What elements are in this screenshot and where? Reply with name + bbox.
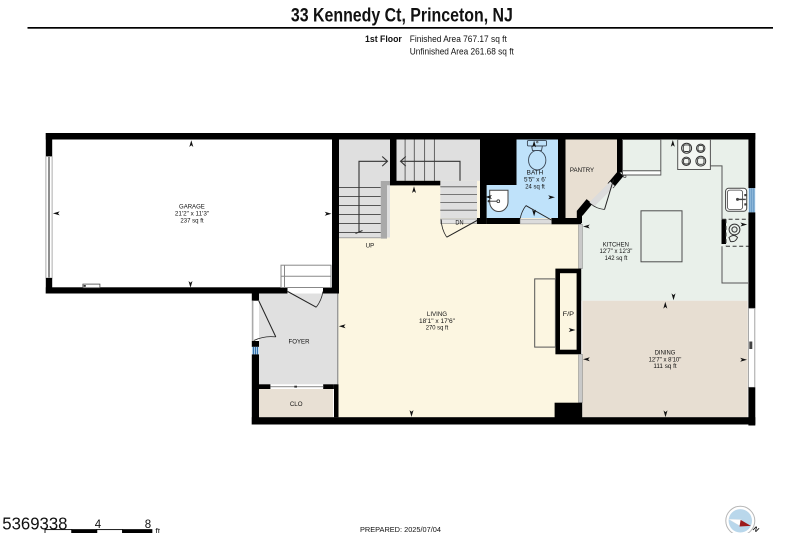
svg-text:33 Kennedy Ct, Princeton, NJ: 33 Kennedy Ct, Princeton, NJ bbox=[291, 5, 513, 26]
svg-text:270 sq ft: 270 sq ft bbox=[426, 325, 449, 332]
svg-text:142 sq ft: 142 sq ft bbox=[605, 255, 628, 262]
svg-text:FOYER: FOYER bbox=[289, 339, 310, 346]
svg-text:24 sq ft: 24 sq ft bbox=[525, 183, 545, 190]
svg-text:PANTRY: PANTRY bbox=[570, 167, 595, 174]
svg-text:ft: ft bbox=[155, 526, 160, 533]
svg-text:Unfinished Area 261.68 sq ft: Unfinished Area 261.68 sq ft bbox=[410, 46, 514, 57]
svg-text:LIVING: LIVING bbox=[427, 311, 447, 318]
svg-text:F/P: F/P bbox=[563, 311, 574, 318]
svg-text:BATH: BATH bbox=[527, 169, 544, 176]
svg-text:1st Floor: 1st Floor bbox=[365, 34, 402, 45]
svg-text:111 sq ft: 111 sq ft bbox=[653, 363, 677, 370]
svg-text:5369338: 5369338 bbox=[2, 514, 67, 533]
svg-text:8: 8 bbox=[145, 519, 151, 531]
svg-text:PREPARED: 2025/07/04: PREPARED: 2025/07/04 bbox=[360, 525, 441, 533]
svg-text:UP: UP bbox=[366, 242, 374, 249]
svg-text:Finished Area 767.17 sq ft: Finished Area 767.17 sq ft bbox=[410, 34, 507, 45]
svg-text:CLO: CLO bbox=[290, 401, 303, 408]
svg-text:GARAGE: GARAGE bbox=[179, 204, 205, 211]
svg-text:DN: DN bbox=[455, 220, 464, 227]
svg-text:4: 4 bbox=[95, 519, 102, 531]
svg-text:237 sq ft: 237 sq ft bbox=[180, 217, 203, 224]
svg-text:12'7" x 12'3": 12'7" x 12'3" bbox=[600, 248, 633, 255]
